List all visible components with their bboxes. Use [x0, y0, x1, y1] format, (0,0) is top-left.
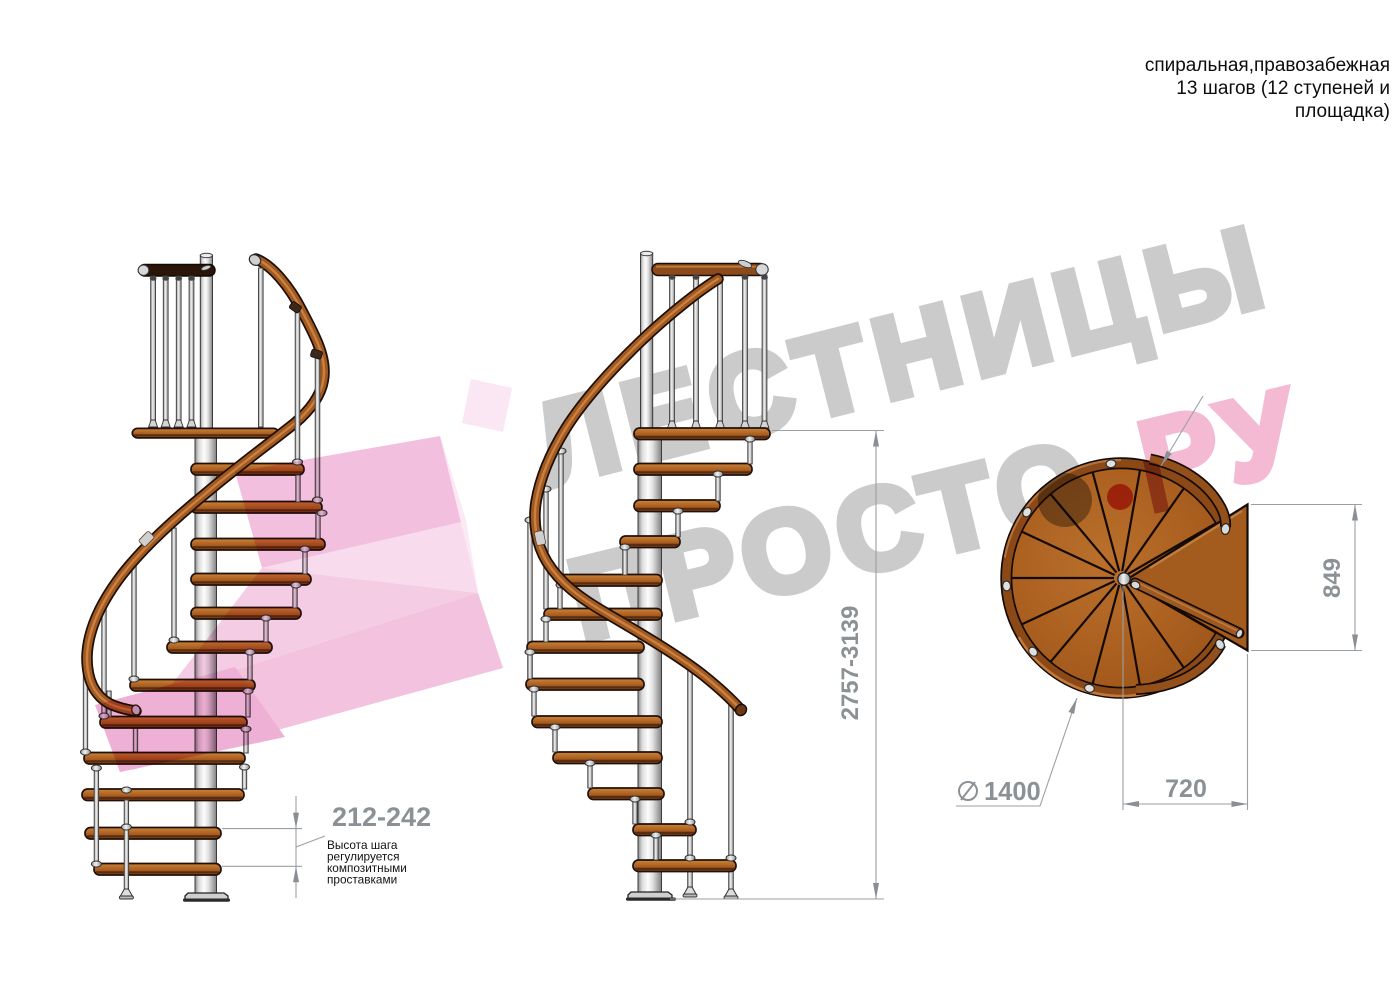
svg-text:849: 849 — [1319, 558, 1346, 598]
svg-text:212-242: 212-242 — [332, 802, 431, 832]
svg-text:720: 720 — [1165, 775, 1207, 803]
svg-text:13 шагов (12 ступеней и: 13 шагов (12 ступеней и — [1176, 78, 1390, 99]
svg-text:площадка): площадка) — [1295, 101, 1390, 122]
svg-text:спиральная,правозабежная: спиральная,правозабежная — [1145, 55, 1390, 76]
svg-text:2757-3139: 2757-3139 — [837, 606, 864, 721]
svg-text:проставками: проставками — [327, 873, 397, 887]
svg-text:1400: 1400 — [984, 778, 1041, 806]
